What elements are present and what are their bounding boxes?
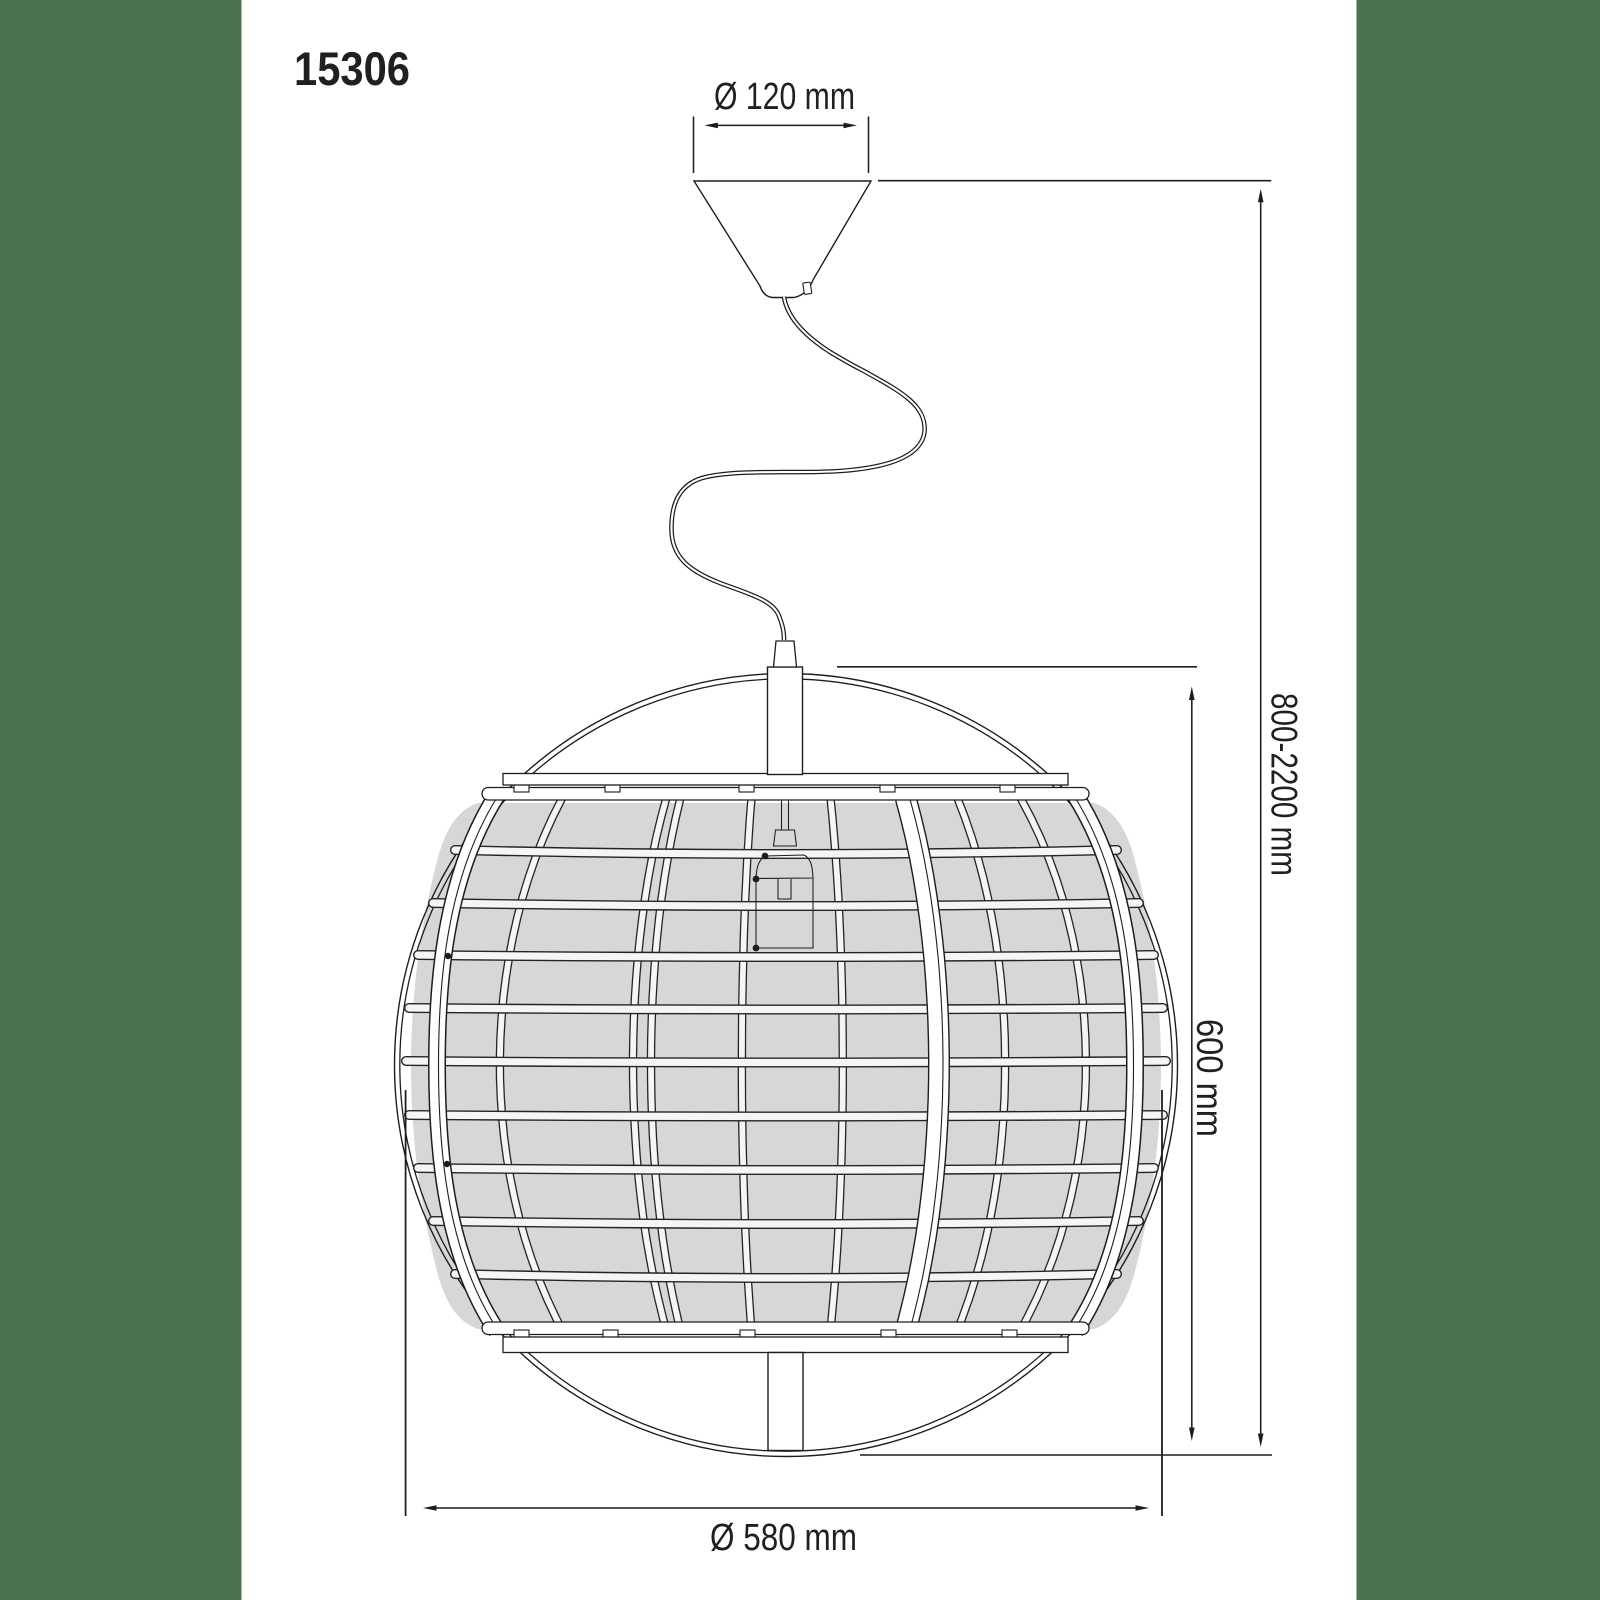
svg-text:800-2200 mm: 800-2200 mm bbox=[1264, 693, 1305, 876]
svg-text:Ø 580 mm: Ø 580 mm bbox=[710, 1517, 857, 1559]
svg-text:Ø 120 mm: Ø 120 mm bbox=[714, 76, 855, 118]
svg-text:15306: 15306 bbox=[294, 42, 410, 95]
svg-text:600 mm: 600 mm bbox=[1189, 1019, 1230, 1137]
